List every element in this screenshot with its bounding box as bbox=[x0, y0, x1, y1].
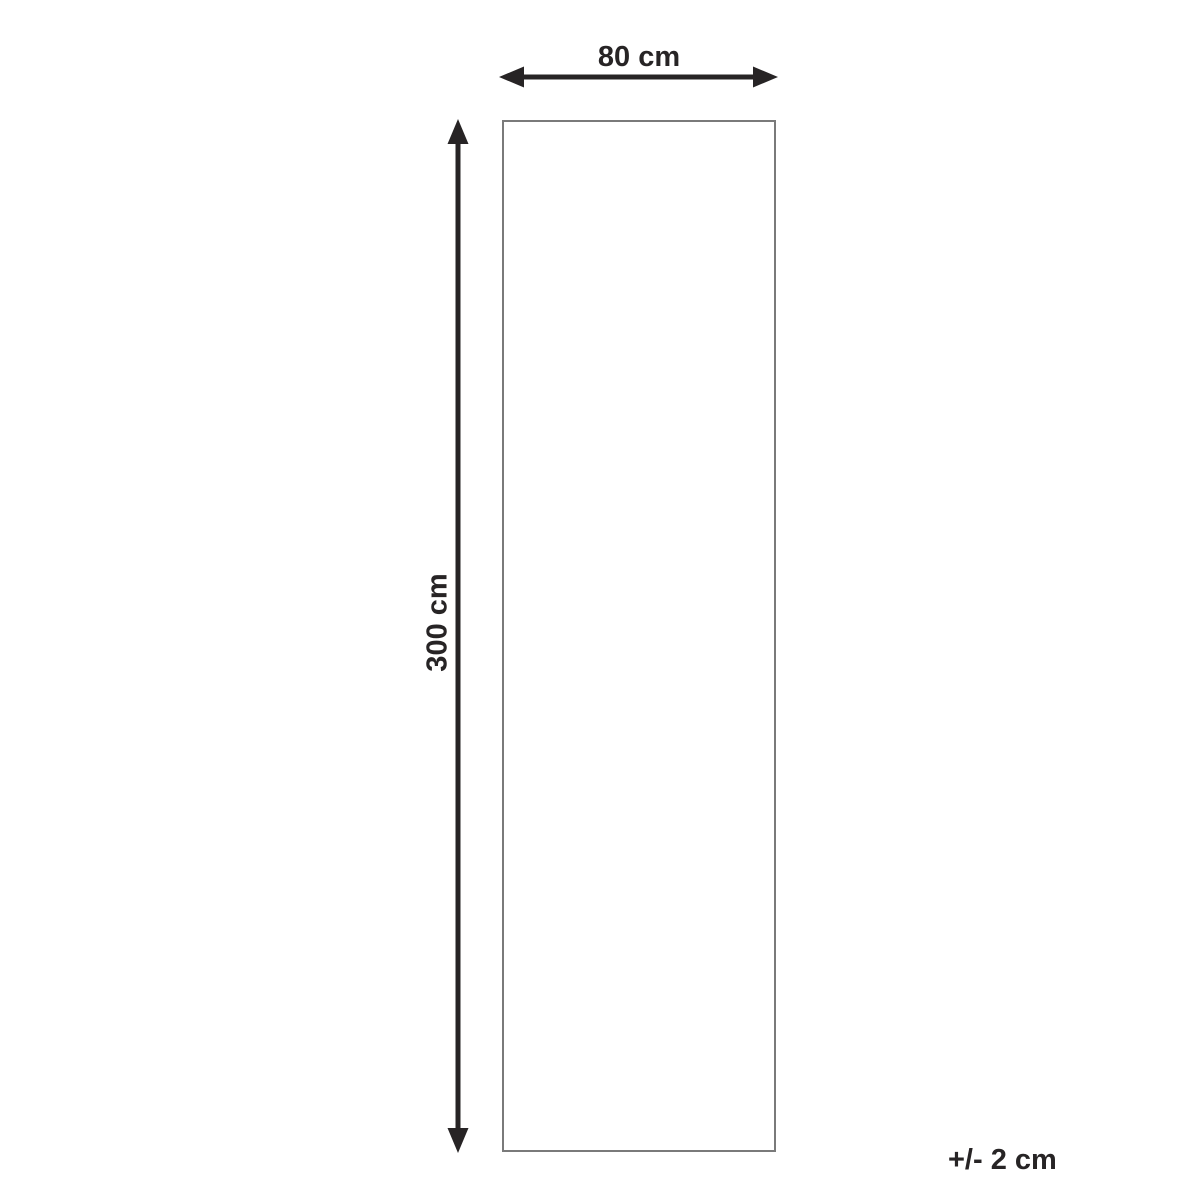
arrow-head-down-icon bbox=[448, 1128, 469, 1153]
height-label: 300 cm bbox=[424, 563, 453, 683]
arrow-head-up-icon bbox=[448, 119, 469, 144]
tolerance-label: +/- 2 cm bbox=[948, 1146, 1057, 1175]
dimension-diagram: 80 cm 300 cm +/- 2 cm bbox=[0, 0, 1200, 1200]
width-label: 80 cm bbox=[502, 43, 776, 72]
dimension-arrows bbox=[0, 0, 1200, 1200]
